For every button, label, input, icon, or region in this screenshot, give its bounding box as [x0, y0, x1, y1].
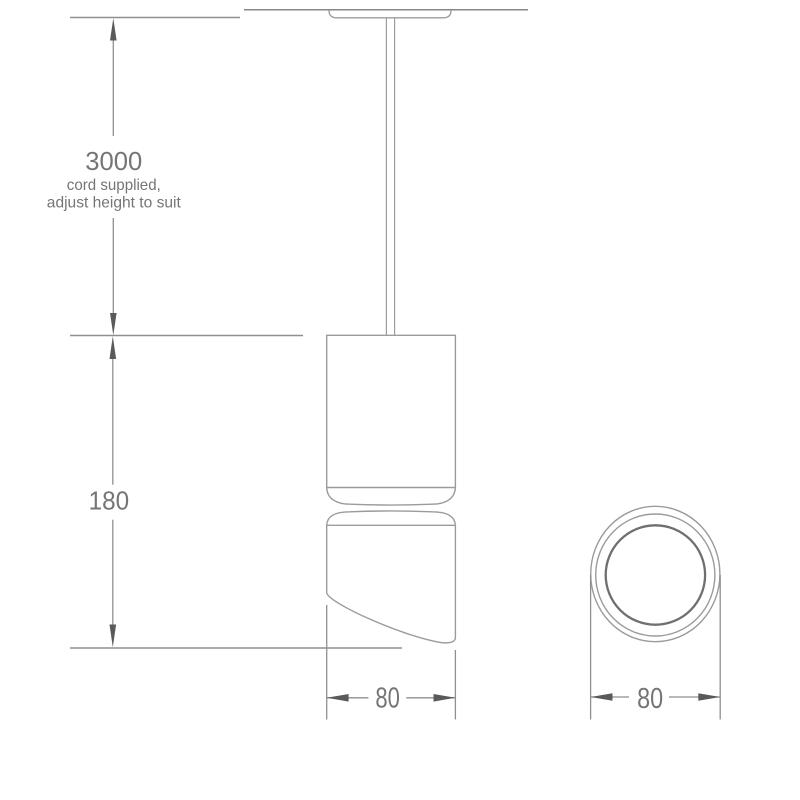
- svg-text:3000: 3000: [85, 148, 142, 176]
- svg-text:adjust height to suit: adjust height to suit: [47, 195, 182, 212]
- svg-text:80: 80: [637, 683, 663, 715]
- svg-text:80: 80: [375, 682, 400, 714]
- svg-text:cord supplied,: cord supplied,: [67, 177, 161, 194]
- svg-text:180: 180: [89, 485, 130, 515]
